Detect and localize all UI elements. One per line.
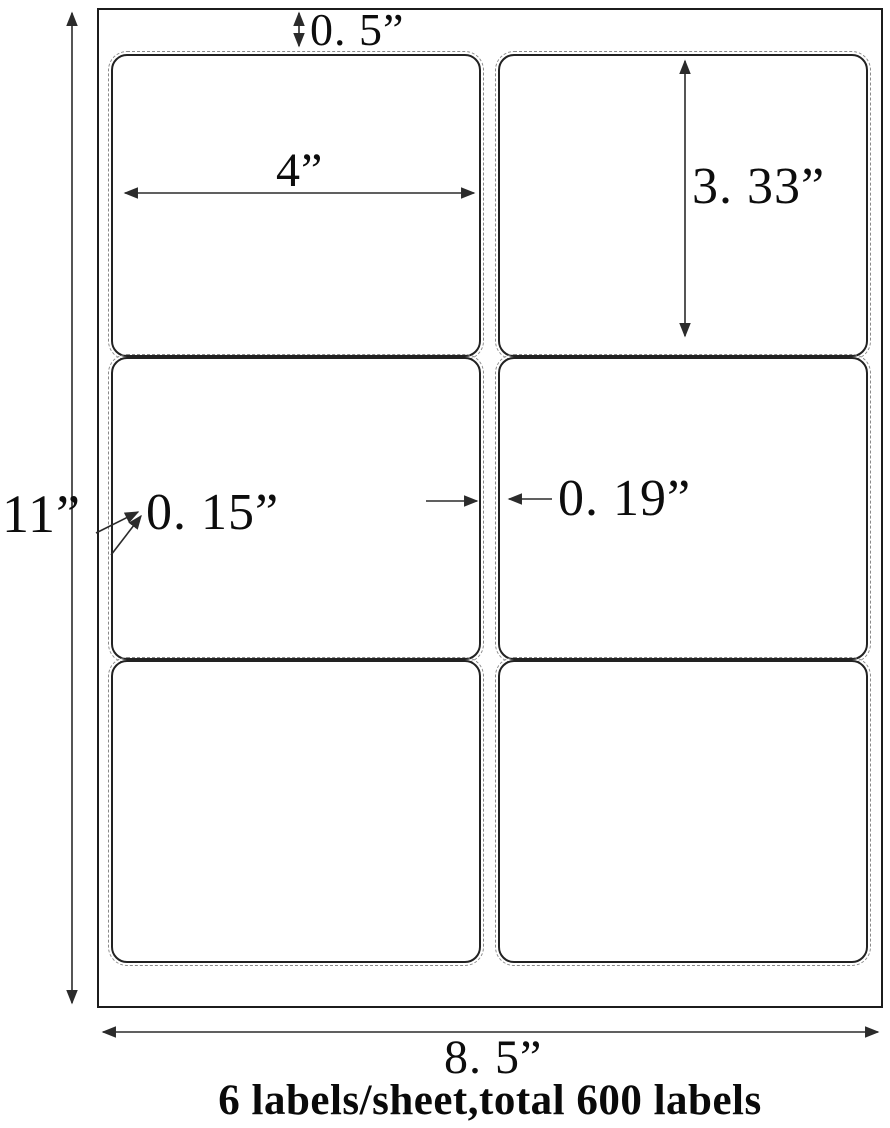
column-gap-dimension: 0. 19” — [558, 472, 691, 527]
top-margin-dimension: 0. 5” — [310, 6, 404, 54]
diagram-canvas: 0. 5” 4” 3. 33” 0. 15” 0. 19” 11” 8. 5” … — [0, 0, 890, 1128]
label-width-dimension: 4” — [276, 146, 323, 196]
label-cell-r1c1 — [111, 54, 481, 357]
label-cell-r3c2 — [498, 660, 868, 963]
sheet-caption: 6 labels/sheet,total 600 labels — [90, 1076, 890, 1125]
sheet-height-dimension: 11” — [2, 486, 81, 543]
side-margin-dimension: 0. 15” — [146, 486, 279, 541]
label-cell-r3c1 — [111, 660, 481, 963]
label-height-dimension: 3. 33” — [692, 160, 825, 215]
